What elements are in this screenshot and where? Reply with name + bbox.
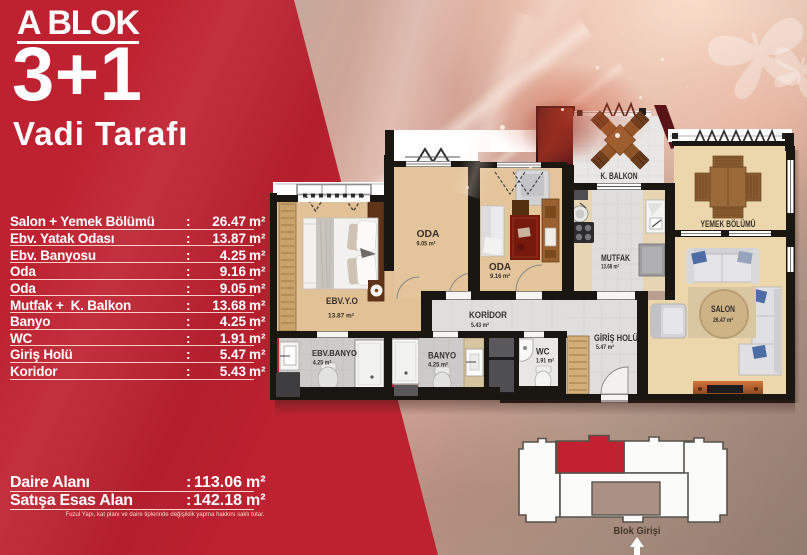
svg-text:EBV.BANYO: EBV.BANYO (312, 349, 357, 358)
svg-text:BANYO: BANYO (428, 351, 456, 361)
svg-text:9.05 m²: 9.05 m² (417, 241, 437, 248)
svg-text:ODA: ODA (489, 262, 511, 273)
svg-text:MUTFAK: MUTFAK (601, 253, 630, 263)
svg-text:26.47 m²: 26.47 m² (713, 317, 733, 324)
svg-text:K. BALKON: K. BALKON (601, 171, 638, 181)
svg-text:13.68 m²: 13.68 m² (601, 264, 619, 271)
svg-text:1.91 m²: 1.91 m² (536, 357, 554, 364)
svg-text:9.16 m²: 9.16 m² (490, 273, 511, 280)
svg-text:EBV.Y.O: EBV.Y.O (326, 296, 358, 307)
svg-text:Blok Girişi: Blok Girişi (614, 525, 661, 537)
svg-text:ODA: ODA (417, 229, 440, 240)
svg-text:5.43 m²: 5.43 m² (471, 322, 489, 329)
svg-text:4.25 m²: 4.25 m² (428, 362, 448, 369)
svg-text:5.47 m²: 5.47 m² (596, 344, 614, 351)
svg-text:13.87 m²: 13.87 m² (328, 313, 355, 320)
svg-text:SALON: SALON (711, 304, 735, 314)
svg-text:YEMEK BÖLÜMÜ: YEMEK BÖLÜMÜ (701, 219, 756, 230)
svg-text:4.25 m²: 4.25 m² (313, 360, 332, 367)
svg-text:GİRİŞ HOLÜ: GİRİŞ HOLÜ (594, 333, 638, 343)
svg-text:WC: WC (536, 346, 550, 356)
svg-text:KORİDOR: KORİDOR (469, 310, 507, 321)
